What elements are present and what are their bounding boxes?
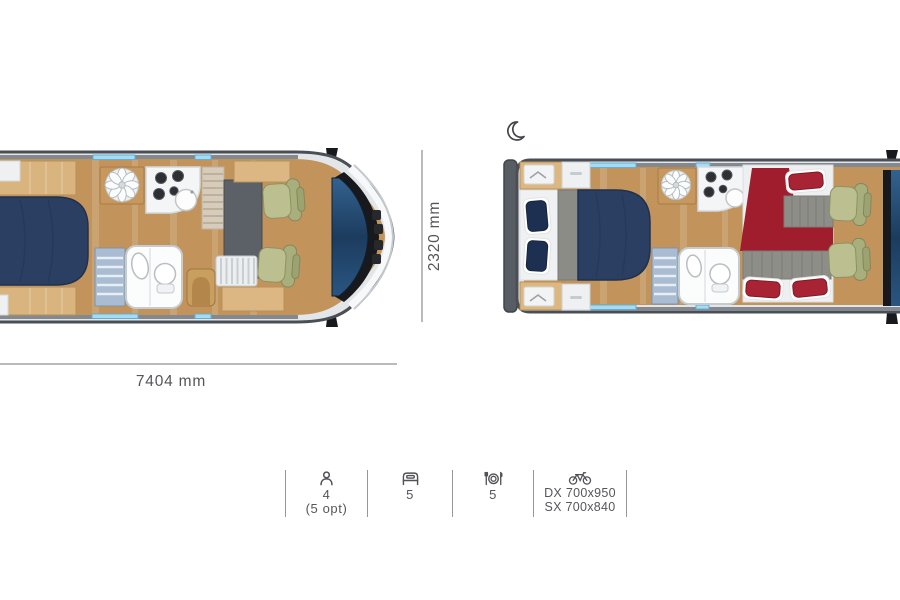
length-dimension-label: 7404 mm: [71, 373, 271, 391]
width-dimension-line: [421, 150, 423, 322]
spec-garage-bike-rack: DX 700x950 SX 700x840: [533, 470, 626, 517]
overhead-cabinet: [234, 161, 290, 182]
spec-value: (5 opt): [306, 502, 348, 516]
windshield: [891, 170, 900, 306]
bed-icon: [402, 471, 419, 486]
rear-bed-night: [520, 190, 650, 280]
person-icon: [319, 471, 334, 486]
dining-icon: [484, 471, 503, 486]
roof-fan-icon: [661, 170, 690, 199]
radiator: [216, 256, 257, 286]
moon-icon: [503, 120, 525, 142]
driver-seat: [829, 182, 872, 226]
day-floorplan: [0, 148, 400, 328]
dinette-bed-night: [740, 165, 833, 302]
entrance-step: [187, 269, 215, 306]
kitchen-block: [146, 167, 200, 213]
spec-travel-seats: 4 (5 opt): [285, 470, 367, 517]
passenger-seat: [257, 243, 301, 288]
driver-seat: [262, 178, 306, 223]
spec-value: 5: [489, 488, 497, 502]
spec-sleeping-berths: 5: [367, 470, 452, 517]
night-floorplan: [500, 148, 900, 328]
rear-bumper: [504, 160, 517, 312]
spec-value: DX 700x950: [544, 487, 616, 501]
roof-fan-icon: [105, 168, 139, 202]
spec-bar: 4 (5 opt) 5 5: [285, 470, 627, 517]
width-dimension-label: 2320 mm: [426, 161, 446, 311]
spec-value: 4: [323, 488, 331, 502]
rear-bed: [0, 197, 88, 285]
bathroom: [679, 248, 739, 304]
cab-front: [883, 170, 900, 306]
entry-door: [202, 167, 224, 229]
pillow: [789, 275, 831, 301]
toilet-icon: [155, 264, 176, 285]
fridge: [652, 248, 678, 304]
floorplan-page: 2320 mm 7404 mm 4 (5 opt) 5: [0, 0, 900, 600]
dinette-table: [658, 168, 696, 204]
spec-value: SX 700x840: [544, 501, 615, 515]
kitchen-block: [698, 167, 747, 211]
spec-value: 5: [406, 488, 414, 502]
dinette-table: [100, 167, 144, 204]
sink-icon: [726, 189, 744, 207]
pillow: [785, 168, 827, 193]
bottom-cabinet: [222, 287, 284, 311]
toilet-icon: [710, 264, 730, 284]
pillow: [523, 237, 551, 275]
spec-dining-places: 5: [452, 470, 533, 517]
passenger-seat: [828, 238, 871, 282]
fridge: [95, 248, 125, 306]
bathroom: [126, 246, 182, 308]
pillow: [742, 277, 783, 302]
length-dimension-line: [0, 363, 397, 365]
pillow: [522, 197, 551, 235]
bicycle-icon: [568, 471, 592, 485]
